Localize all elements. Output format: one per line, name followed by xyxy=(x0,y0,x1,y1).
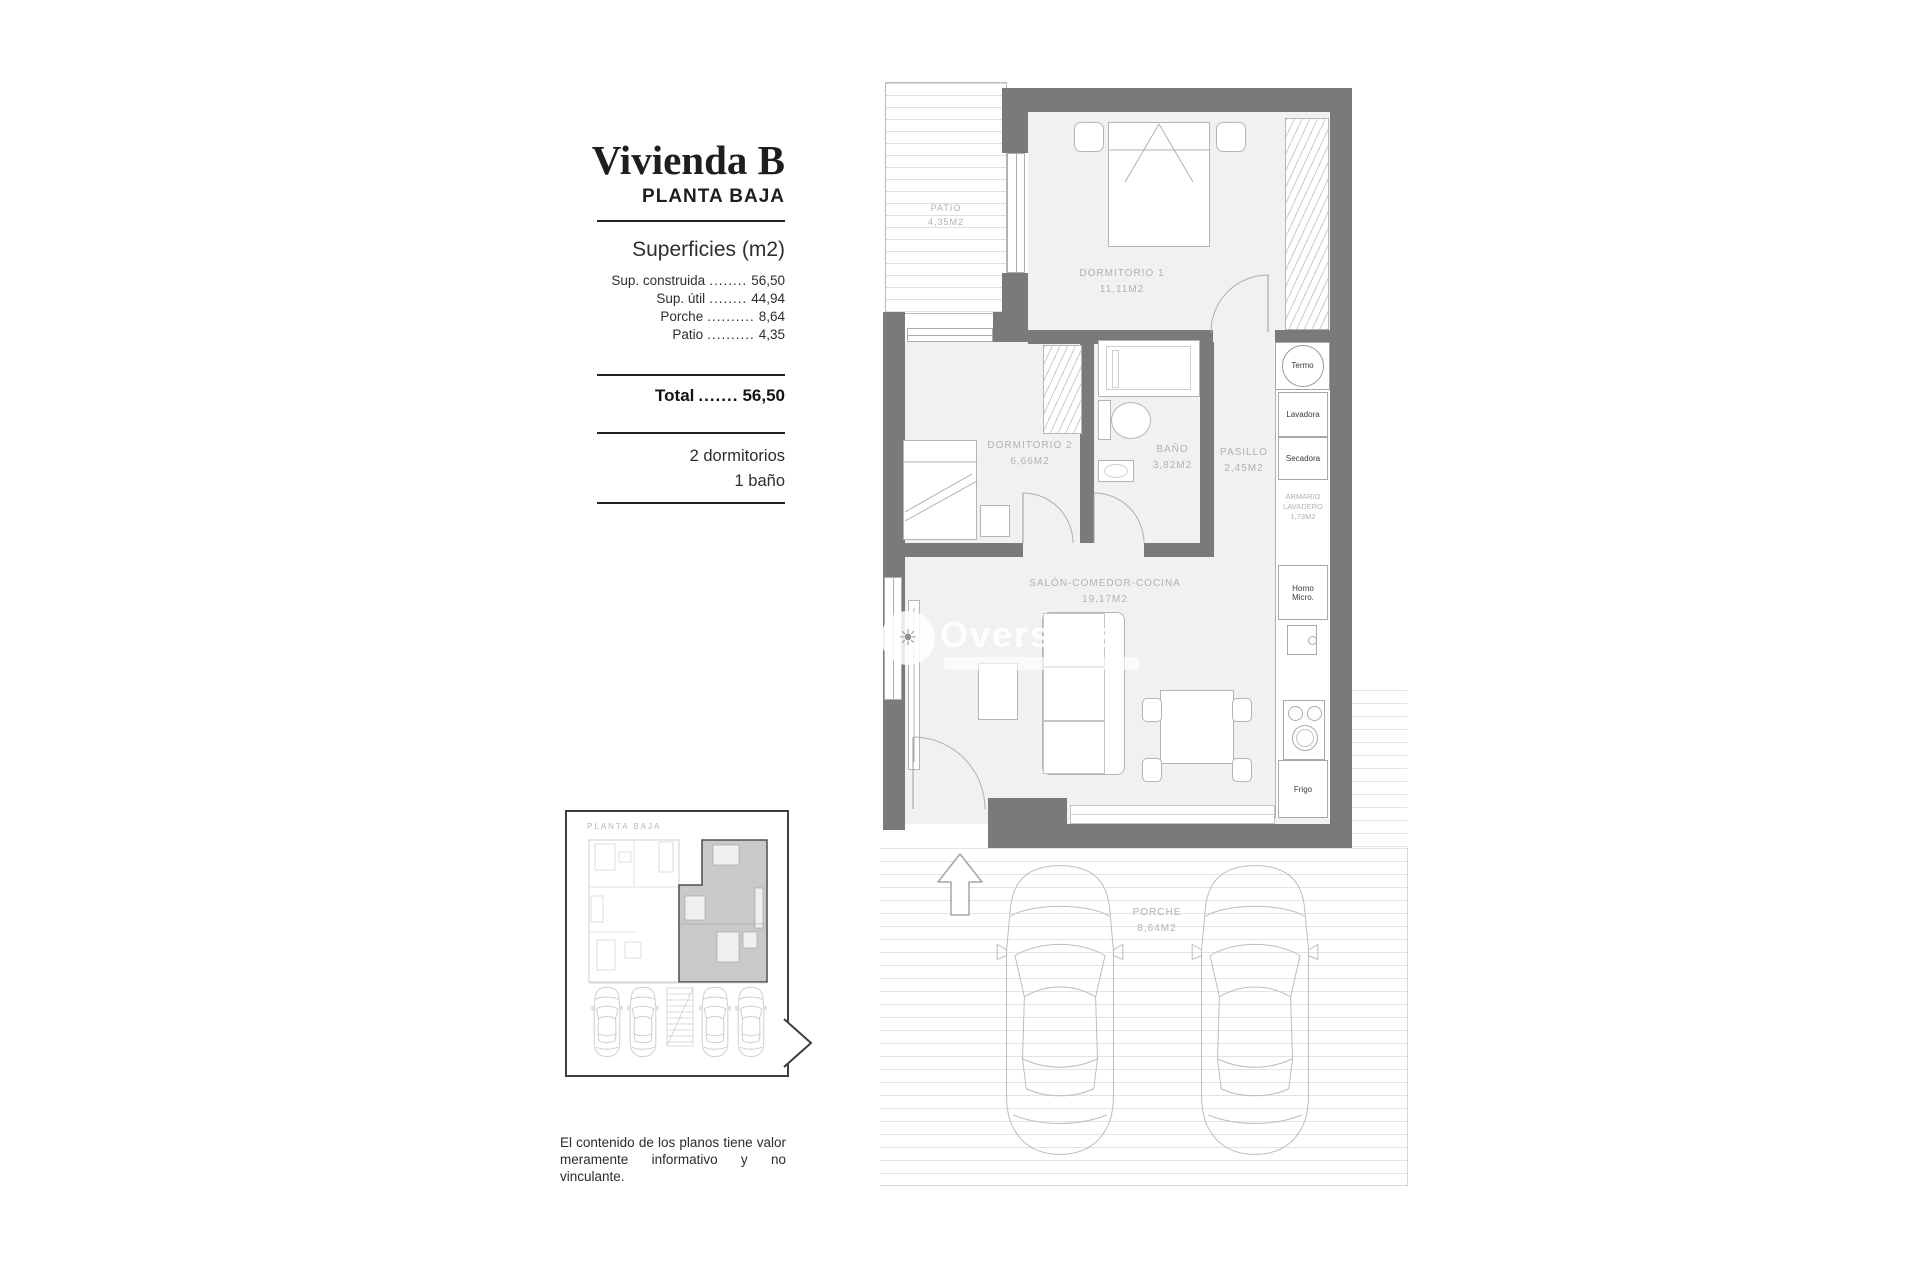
surface-row: Sup. construida........56,50 xyxy=(560,272,785,290)
divider xyxy=(597,374,785,376)
surface-value: 4,35 xyxy=(759,327,785,342)
inset-bed xyxy=(685,896,705,920)
disclaimer-line1: El contenido de los planos tiene valor xyxy=(560,1134,786,1151)
watermark-sun-badge: ☀ xyxy=(881,611,935,665)
surface-value: 8,64 xyxy=(759,309,785,324)
watermark-tagline-bar xyxy=(944,657,1139,670)
inset-kitchen xyxy=(755,888,763,928)
surfaces-heading: Superficies (m2) xyxy=(560,238,785,262)
watermark-brand: Overseas xyxy=(940,614,1118,656)
car-icon xyxy=(700,987,730,1056)
total-label: Total xyxy=(655,386,694,405)
door-arc xyxy=(1211,275,1268,332)
car-icon xyxy=(736,987,766,1056)
surface-label: Sup. útil xyxy=(656,291,705,306)
car-icon xyxy=(990,860,1130,1160)
title-block: Vivienda B PLANTA BAJA Superficies (m2) … xyxy=(560,138,785,504)
surface-value: 56,50 xyxy=(751,273,785,288)
car-icon xyxy=(1185,860,1325,1160)
surface-row: Porche..........8,64 xyxy=(560,308,785,326)
floor-plan-page: Vivienda B PLANTA BAJA Superficies (m2) … xyxy=(0,0,1920,1280)
feature-bedrooms: 2 dormitorios xyxy=(560,444,785,469)
page-title: Vivienda B xyxy=(560,138,785,182)
entrance-arrow-icon xyxy=(936,852,984,918)
surface-label: Patio xyxy=(672,327,703,342)
door-arc xyxy=(913,737,985,809)
disclaimer-line2: meramente informativo y no vinculante. xyxy=(560,1151,786,1185)
door-arc xyxy=(1023,493,1073,543)
total-value: 56,50 xyxy=(742,386,785,405)
surface-label: Porche xyxy=(660,309,703,324)
dots: ........ xyxy=(709,291,747,306)
sun-icon: ☀ xyxy=(898,625,918,651)
divider xyxy=(597,220,785,222)
inset-bed xyxy=(713,845,739,865)
car-icon xyxy=(592,987,622,1056)
bed-linen-lines xyxy=(903,462,977,521)
bed-linen-lines xyxy=(1108,124,1210,182)
dots: ........ xyxy=(709,273,747,288)
page-subtitle: PLANTA BAJA xyxy=(560,186,785,208)
disclaimer: El contenido de los planos tiene valor m… xyxy=(560,1134,786,1185)
inset-site-plan: PLANTA BAJA xyxy=(565,810,789,1077)
surface-row: Patio..........4,35 xyxy=(560,326,785,344)
inset-table xyxy=(743,932,757,948)
divider xyxy=(597,432,785,434)
surface-row: Sup. útil........44,94 xyxy=(560,290,785,308)
inset-drawing xyxy=(567,812,787,1075)
total-row: Total.......56,50 xyxy=(560,386,785,406)
surface-label: Sup. construida xyxy=(611,273,705,288)
dots: .......... xyxy=(707,309,755,324)
door-arc xyxy=(1094,493,1144,543)
inset-sofa xyxy=(717,932,739,962)
feature-bathrooms: 1 baño xyxy=(560,469,785,494)
car-icon xyxy=(628,987,658,1056)
dots: ....... xyxy=(698,386,738,405)
dots: .......... xyxy=(707,327,755,342)
features: 2 dormitorios 1 baño xyxy=(560,444,785,494)
divider xyxy=(597,502,785,504)
inset-pointer xyxy=(783,1018,813,1068)
stairs-icon xyxy=(667,988,693,1046)
surface-value: 44,94 xyxy=(751,291,785,306)
